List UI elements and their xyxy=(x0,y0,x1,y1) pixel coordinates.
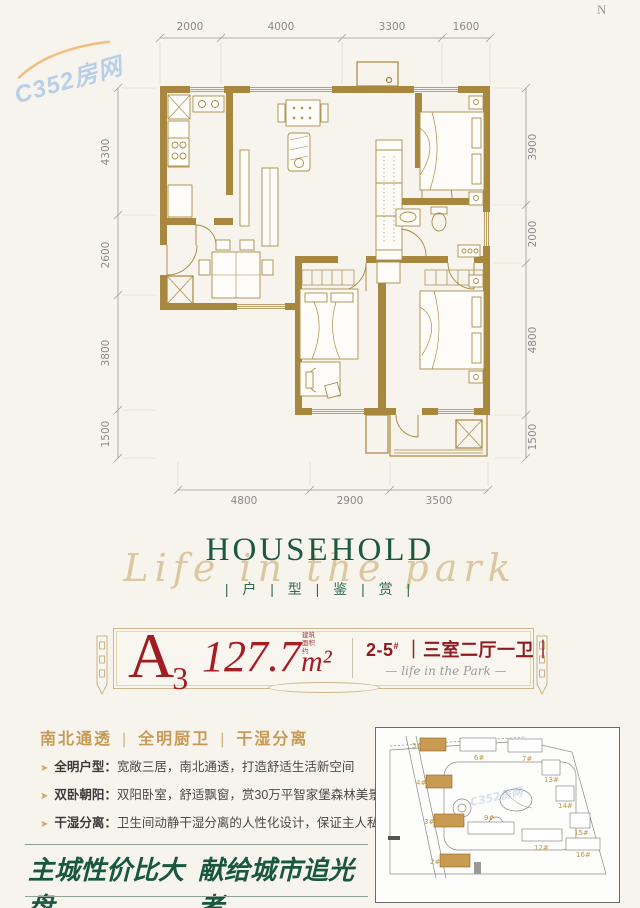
svg-text:2900: 2900 xyxy=(337,495,364,507)
unit-letter: A xyxy=(128,620,174,691)
slogan-right: 献给城市追光者 xyxy=(198,850,368,908)
unit-code: A3 xyxy=(128,626,188,697)
unit-tagline: — life in the Park — xyxy=(366,664,526,678)
map-watermark: C352房网 xyxy=(469,785,526,809)
feature-2: 全明厨卫 xyxy=(138,731,210,748)
selling-point: ➤干湿分离：卫生间动静干湿分离的人性化设计，保证主人私密生活 xyxy=(40,812,380,831)
site-map: 5# 6# 7# 13# 4# 14# 3# 9# 15# 12# 16# 2#… xyxy=(375,727,620,903)
feature-3: 干湿分离 xyxy=(236,731,308,748)
svg-text:14#: 14# xyxy=(558,802,573,810)
site-map-drawing: 5# 6# 7# 13# 4# 14# 3# 9# 15# 12# 16# 2#… xyxy=(376,728,619,902)
svg-text:3800: 3800 xyxy=(100,340,112,367)
svg-text:4800: 4800 xyxy=(527,327,539,354)
floor-plan: 2000 4000 3300 1600 4300 2600 3800 1500 … xyxy=(0,0,640,520)
section-title: Life in the park HOUSEHOLD | 户 | 型 | 鉴 |… xyxy=(0,524,640,606)
svg-text:5#: 5# xyxy=(412,742,422,750)
svg-text:6#: 6# xyxy=(474,754,484,762)
svg-text:1500: 1500 xyxy=(527,424,539,451)
svg-text:2000: 2000 xyxy=(527,221,539,248)
selling-point: ➤全明户型：宽敞三居，南北通透，打造舒适生活新空间 xyxy=(40,756,380,775)
building-labels: 5# 6# 7# 13# 4# 14# 3# 9# 15# 12# 16# 2# xyxy=(412,742,591,866)
slogan-left: 主城性价比大盘 xyxy=(28,850,198,908)
svg-text:1600: 1600 xyxy=(453,21,480,33)
arrow-bullet-icon: ➤ xyxy=(40,763,48,774)
svg-text:4#: 4# xyxy=(416,779,426,787)
svg-text:13#: 13# xyxy=(544,776,559,784)
area-value: 127.7 xyxy=(202,632,301,681)
unit-info: 2-5# ｜三室二厅一卫｜ — life in the Park — xyxy=(366,636,526,678)
slogan: 主城性价比大盘 献给城市追光者 xyxy=(28,850,368,908)
svg-text:4300: 4300 xyxy=(100,139,112,166)
svg-text:16#: 16# xyxy=(576,851,591,859)
site-roads xyxy=(390,736,606,878)
selling-point: ➤双卧朝阳：双阳卧室，舒适飘窗，赏30万平智家堡森林美景 xyxy=(40,784,380,803)
unit-number: 3 xyxy=(172,660,188,696)
svg-text:3#: 3# xyxy=(424,818,434,826)
flyer-page: C352房网 N 2000 4000 3300 1600 xyxy=(0,0,640,908)
svg-text:15#: 15# xyxy=(574,829,589,837)
arrow-bullet-icon: ➤ xyxy=(40,791,48,802)
kitchen-fixtures xyxy=(168,95,224,217)
svg-text:9#: 9# xyxy=(484,814,494,822)
unit-buildings-layout: 2-5# ｜三室二厅一卫｜ xyxy=(366,636,526,662)
svg-text:4000: 4000 xyxy=(268,21,295,33)
section-title-main: HOUSEHOLD xyxy=(0,532,640,569)
svg-text:3900: 3900 xyxy=(527,134,539,161)
svg-text:3300: 3300 xyxy=(379,21,406,33)
svg-text:3500: 3500 xyxy=(426,495,453,507)
svg-text:4800: 4800 xyxy=(231,495,258,507)
card-divider xyxy=(352,638,353,678)
svg-text:2000: 2000 xyxy=(177,21,204,33)
feature-1: 南北通透 xyxy=(40,731,112,748)
divider-line xyxy=(25,896,368,897)
svg-text:2#: 2# xyxy=(430,858,440,866)
buildings-mark: # xyxy=(394,641,400,651)
bathroom-fixtures xyxy=(396,207,480,257)
selling-points: ➤全明户型：宽敞三居，南北通透，打造舒适生活新空间 ➤双卧朝阳：双阳卧室，舒适飘… xyxy=(40,756,380,840)
card-ornament-bottom-icon xyxy=(268,682,380,693)
divider-line xyxy=(25,844,368,845)
unit-area: 127.7m² 建筑面积约 xyxy=(202,634,332,680)
svg-text:2600: 2600 xyxy=(100,242,112,269)
area-note: 建筑面积约 xyxy=(302,632,318,655)
section-title-sub: | 户 | 型 | 鉴 | 赏 | xyxy=(0,579,640,599)
feature-tags: 南北通透|全明厨卫|干湿分离 xyxy=(40,725,308,749)
arrow-bullet-icon: ➤ xyxy=(40,819,48,830)
desk-icon xyxy=(300,362,341,398)
unit-layout: ｜三室二厅一卫｜ xyxy=(405,640,553,660)
svg-text:7#: 7# xyxy=(522,755,532,763)
svg-text:1500: 1500 xyxy=(100,421,112,448)
buildings-range: 2-5 xyxy=(366,640,394,660)
svg-text:12#: 12# xyxy=(534,844,549,852)
highlighted-buildings xyxy=(420,738,470,867)
card-ornament-left-icon xyxy=(91,634,113,696)
